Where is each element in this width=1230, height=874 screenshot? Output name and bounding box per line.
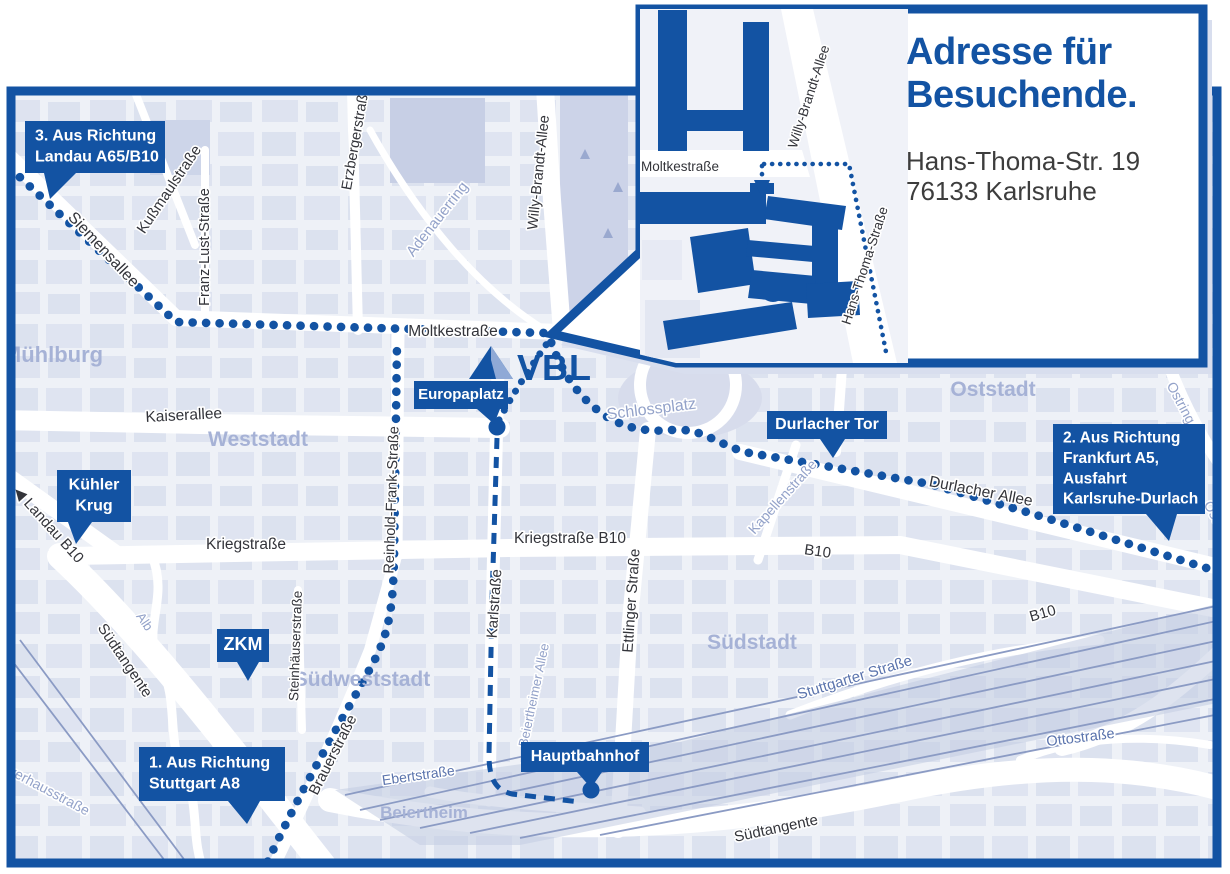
district-label: Beiertheim <box>380 803 468 822</box>
callout-text: Durlacher Tor <box>775 416 879 433</box>
district-label: Oststadt <box>950 378 1035 401</box>
district-label: Südstadt <box>707 631 797 654</box>
karlsruhe-directions-map: MühlburgWeststadtSüdweststadtSüdstadtOst… <box>0 0 1230 874</box>
vbl-logo-text: VBL <box>517 347 592 388</box>
inset-address-line1: Hans-Thoma-Str. 19 <box>906 146 1140 176</box>
callout-text: Hauptbahnhof <box>531 748 640 765</box>
inset-title-line2: Besuchende. <box>906 74 1137 116</box>
callout-text: ZKM <box>224 634 263 654</box>
street-label: Kriegstraße <box>206 536 286 553</box>
district-label: Mühlburg <box>3 342 103 367</box>
inset-street-label: Moltkestraße <box>641 159 719 174</box>
street-label: Kriegstraße B10 <box>514 530 626 547</box>
district-label: Weststadt <box>208 428 308 451</box>
callout-text: Europaplatz <box>418 386 504 403</box>
inset-address-line2: 76133 Karlsruhe <box>906 176 1097 206</box>
district-label: Südweststadt <box>294 668 431 691</box>
street-label: Moltkestraße <box>408 323 498 340</box>
dark-block <box>390 98 485 183</box>
inset-title-line1: Adresse für <box>906 31 1112 73</box>
street-label: Franz-Lust-Straße <box>197 188 213 306</box>
inset-map <box>640 9 908 363</box>
inset-panel: MoltkestraßeWilly-Brandt-AlleeHans-Thoma… <box>552 9 1212 374</box>
